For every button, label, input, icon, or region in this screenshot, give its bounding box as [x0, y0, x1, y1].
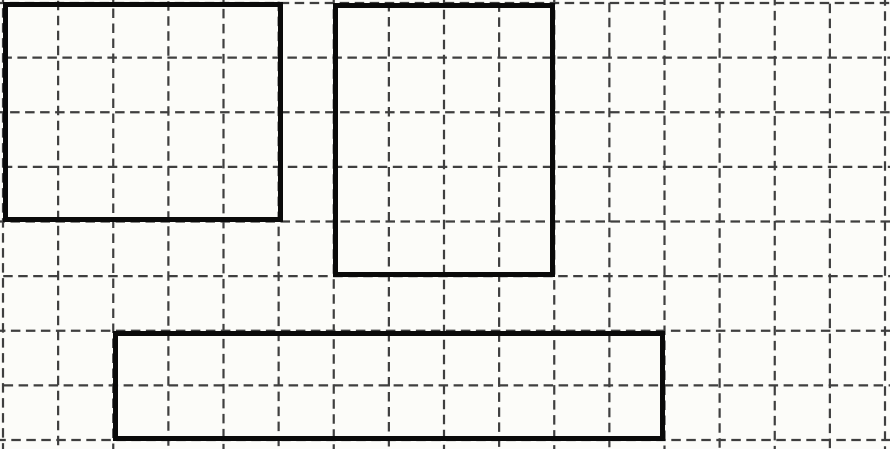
- grid-paper-sheet: [0, 0, 890, 449]
- rectangle-top-left: [3, 2, 283, 222]
- rectangle-bottom-wide: [113, 331, 665, 441]
- rectangle-top-middle: [333, 3, 555, 277]
